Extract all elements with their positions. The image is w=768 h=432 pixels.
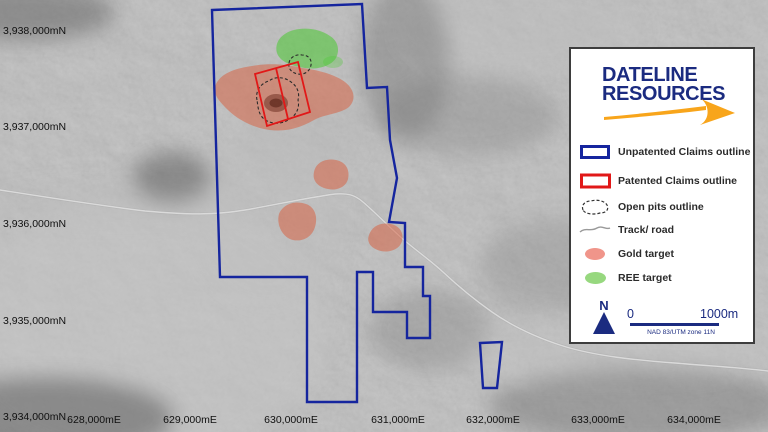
legend-item-label: Track/ road — [618, 224, 674, 236]
legend-item-label: Unpatented Claims outline — [618, 146, 750, 158]
unpatented-claims-swatch — [580, 145, 610, 159]
easting-label: 629,000mE — [163, 414, 217, 426]
legend-panel: DATELINE RESOURCES Unpatented Claims out… — [569, 47, 755, 344]
ree-target-swatch — [585, 272, 606, 284]
easting-label: 628,000mE — [67, 414, 121, 426]
easting-label: 632,000mE — [466, 414, 520, 426]
easting-label: 630,000mE — [264, 414, 318, 426]
legend-item-patented-claims: Patented Claims outline — [571, 170, 753, 192]
track-road-swatch — [578, 222, 612, 238]
legend-item-label: Open pits outline — [618, 201, 704, 213]
map-figure: 3,938,000mN 3,937,000mN 3,936,000mN 3,93… — [0, 0, 768, 432]
legend-item-track-road: Track/ road — [571, 219, 753, 241]
legend-item-unpatented-claims: Unpatented Claims outline — [571, 141, 753, 163]
legend-item-gold-target: Gold target — [571, 243, 753, 265]
open-pits-swatch — [578, 197, 612, 217]
datum-label: NAD 83/UTM zone 11N — [611, 329, 751, 336]
easting-label: 633,000mE — [571, 414, 625, 426]
patented-claims-swatch — [580, 174, 611, 189]
northing-label: 3,936,000mN — [3, 218, 66, 230]
legend-item-open-pits: Open pits outline — [571, 196, 753, 218]
northing-label: 3,938,000mN — [3, 25, 66, 37]
scale-max-label: 1000m — [700, 307, 738, 321]
northing-label: 3,935,000mN — [3, 315, 66, 327]
scale-bar — [630, 323, 719, 326]
logo-arrow-icon — [599, 95, 741, 129]
northing-label: 3,937,000mN — [3, 121, 66, 133]
legend-item-label: Patented Claims outline — [618, 175, 737, 187]
gold-target-swatch — [585, 248, 605, 260]
legend-item-ree-target: REE target — [571, 267, 753, 289]
easting-label: 631,000mE — [371, 414, 425, 426]
easting-label: 634,000mE — [667, 414, 721, 426]
legend-item-label: REE target — [618, 272, 672, 284]
northing-label: 3,934,000mN — [3, 411, 66, 423]
scale-zero-label: 0 — [627, 307, 634, 321]
legend-item-label: Gold target — [618, 248, 674, 260]
